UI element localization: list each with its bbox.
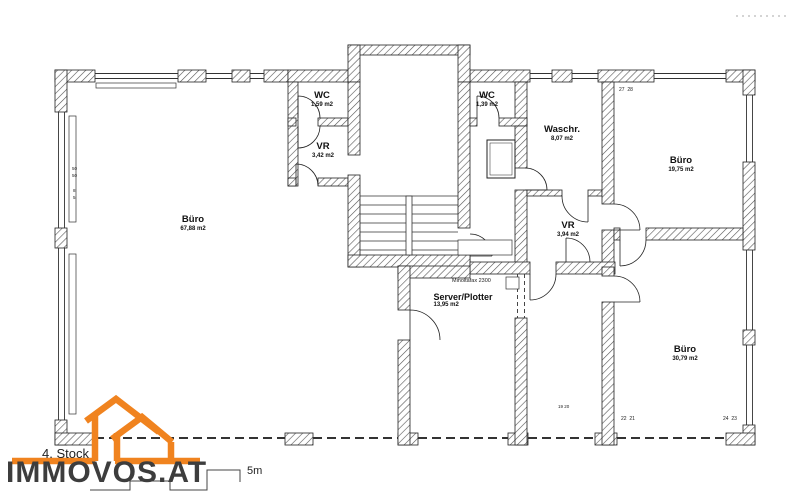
dim-bottom-small: 19 20	[558, 404, 569, 409]
floor-plan-page: Büro 67,88 m2 WC 1,59 m2 VR 3,42 m2 WC 1…	[0, 0, 800, 495]
dim-bottom-right: 24 23	[723, 416, 737, 422]
room-label-waschraum: Waschr. 8,07 m2	[544, 125, 580, 143]
elevator-shaft	[487, 140, 515, 178]
room-area: 19,75 m2	[668, 167, 693, 174]
immovos-logo-text: IMMOVOS.AT	[6, 456, 207, 490]
room-name: Büro	[668, 156, 693, 167]
walls	[55, 45, 755, 445]
dim-top-right: 27 28	[619, 87, 633, 93]
fax-annotation: Minoltafax 2300	[452, 278, 491, 284]
dim-left-2: 50	[72, 173, 77, 178]
dim-bottom-mid: 22 21	[621, 416, 635, 422]
immovos-logo-house-icon	[12, 399, 200, 461]
room-name: VR	[557, 221, 579, 232]
room-label-vr-left: VR 3,42 m2	[312, 142, 334, 160]
room-name: VR	[312, 142, 334, 153]
room-label-wc-left: WC 1,59 m2	[311, 91, 333, 109]
room-name: Server/Plotter	[433, 292, 492, 302]
room-area: 3,94 m2	[557, 232, 579, 239]
staircase	[360, 196, 458, 255]
room-label-server-plotter: Server/Plotter 13,95 m2	[433, 292, 492, 309]
room-label-vr-right: VR 3,94 m2	[557, 221, 579, 239]
fax-icon	[506, 277, 519, 289]
floor-plan-drawing	[0, 0, 800, 495]
room-name: WC	[311, 91, 333, 102]
radiator	[69, 254, 76, 414]
room-label-wc-right: WC 1,39 m2	[476, 91, 498, 109]
room-name: Büro	[672, 345, 697, 356]
room-name: WC	[476, 91, 498, 102]
room-area: 3,42 m2	[312, 153, 334, 160]
room-area: 30,79 m2	[672, 356, 697, 363]
room-area: 1,39 m2	[476, 102, 498, 109]
dim-left-3: 8	[73, 188, 76, 193]
dim-left-1: 50	[72, 166, 77, 171]
room-label-buero-top-right: Büro 19,75 m2	[668, 156, 693, 174]
room-label-buero-left: Büro 67,88 m2	[180, 215, 205, 233]
room-label-buero-bottom-right: Büro 30,79 m2	[672, 345, 697, 363]
room-name: Waschr.	[544, 125, 580, 136]
room-area: 1,59 m2	[311, 102, 333, 109]
scale-label: 5m	[247, 465, 262, 477]
dim-left-4: 5	[73, 195, 76, 200]
room-area: 67,88 m2	[180, 226, 205, 233]
room-name: Büro	[180, 215, 205, 226]
room-area: 13,95 m2	[433, 302, 492, 309]
radiator	[96, 83, 176, 88]
room-area: 8,07 m2	[544, 136, 580, 143]
